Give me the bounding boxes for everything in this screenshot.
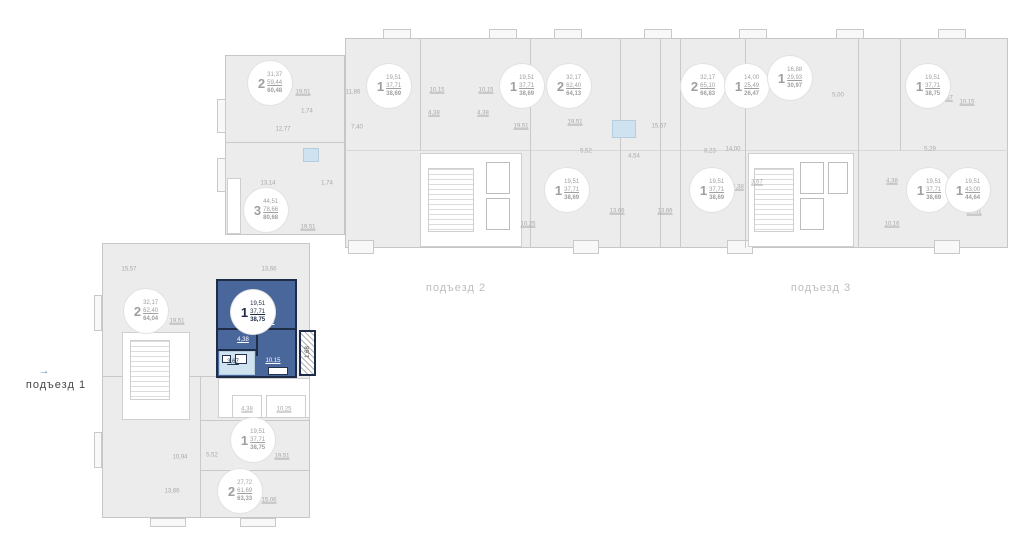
dimension-label: 4,38 [886, 179, 898, 186]
entrance-arrow-icon: → [39, 365, 50, 377]
dimension-label: 7,40 [351, 125, 363, 132]
badge-total-area: 44,64 [965, 194, 980, 202]
balcony-tab [150, 518, 186, 527]
dimension-label: 5,00 [832, 93, 844, 100]
dimension-label: 10,25 [520, 222, 535, 229]
badge-total-area: 38,69 [709, 194, 724, 202]
badge-total-area: 30,97 [787, 82, 802, 90]
wall [345, 150, 1008, 151]
badge-area: 62,40 [143, 307, 158, 315]
badge-total-area: 38,69 [519, 90, 534, 98]
apartment-badge[interactable]: 2 27,7261,6963,33 [218, 469, 262, 513]
badge-total-area: 60,48 [267, 87, 282, 95]
entrance-vestibule [348, 240, 374, 254]
apartment-badge[interactable]: 1 19,5137,7138,69 [500, 64, 544, 108]
apartment-badge[interactable]: 1 19,5137,7138,75 [231, 418, 275, 462]
balcony-tab [217, 99, 226, 133]
badge-total-area: 64,04 [143, 315, 158, 323]
entrance-vestibule [934, 240, 960, 254]
badge-total-area: 63,33 [237, 495, 252, 503]
dimension-label: 15,06 [261, 498, 276, 505]
badge-living-area: 27,72 [237, 479, 252, 487]
badge-area: 37,71 [250, 308, 265, 316]
balcony-tab [383, 29, 411, 39]
dimension-label: 10,94 [172, 455, 187, 462]
badge-living-area: 19,51 [250, 428, 265, 436]
badge-area: 37,71 [709, 186, 724, 194]
dimension-label: 13,66 [164, 489, 179, 496]
badge-rooms: 1 [917, 183, 924, 198]
badge-total-area: 38,69 [564, 194, 579, 202]
badge-area: 43,00 [965, 186, 980, 194]
stairs [754, 168, 794, 232]
elevator [800, 198, 824, 230]
apartment-badge[interactable]: 1 19,5137,7138,69 [367, 64, 411, 108]
elevator [828, 162, 848, 194]
entrance-label-2[interactable]: подъезд 2 [426, 282, 486, 294]
dimension-label: 19,51 [169, 319, 184, 326]
apartment-badge[interactable]: 1 19,5137,7138,69 [907, 168, 951, 212]
dimension-label: 8,23 [704, 149, 716, 156]
badge-total-area: 38,75 [925, 90, 940, 98]
badge-living-area: 32,17 [143, 299, 158, 307]
badge-rooms: 1 [555, 183, 562, 198]
dimension-label: 10,15 [429, 88, 444, 95]
badge-rooms: 3 [254, 203, 261, 218]
room-area-label: 10,15 [265, 358, 280, 364]
bathroom [612, 120, 636, 138]
badge-living-area: 19,51 [519, 74, 534, 82]
dimension-label: 5,52 [206, 453, 218, 460]
badge-living-area: 16,88 [787, 66, 802, 74]
badge-rooms: 1 [700, 183, 707, 198]
badge-living-area: 32,17 [566, 74, 581, 82]
badge-area: 59,44 [267, 79, 282, 87]
apartment-badge[interactable]: 1 19,5137,7138,69 [545, 168, 589, 212]
dimension-label: 13,66 [261, 267, 276, 274]
badge-living-area: 19,51 [926, 178, 941, 186]
elevator [486, 162, 510, 194]
badge-area: 25,49 [744, 82, 759, 90]
wall [680, 38, 681, 248]
balcony-tab [240, 518, 276, 527]
balcony-tab [836, 29, 864, 39]
badge-rooms: 2 [228, 484, 235, 499]
entrance-label-1[interactable]: подъезд 1 [26, 379, 86, 391]
dimension-label: 11,86 [346, 90, 361, 97]
apartment-badge[interactable]: 2 32,1762,4064,13 [547, 64, 591, 108]
wall [256, 330, 258, 356]
wall [620, 38, 621, 248]
wall [225, 142, 345, 143]
dimension-label: 15,67 [651, 124, 666, 131]
shaft [227, 178, 241, 234]
apartment-badge[interactable]: 1 14,0025,4926,47 [725, 64, 769, 108]
badge-living-area: 32,17 [700, 74, 715, 82]
dimension-label: 19,51 [274, 454, 289, 461]
dimension-label: 4,38 [241, 407, 253, 414]
stove-fixture [268, 367, 288, 375]
dimension-label: 10,15 [959, 100, 974, 107]
dimension-label: 1,74 [321, 181, 333, 188]
badge-living-area: 19,51 [250, 300, 265, 308]
apartment-badge[interactable]: 3 44,5178,6680,68 [244, 188, 288, 232]
balcony-tab [94, 432, 102, 468]
dimension-label: 19,51 [295, 90, 310, 97]
badge-total-area: 66,83 [700, 90, 715, 98]
balcony-tab [554, 29, 582, 39]
balcony-tab [644, 29, 672, 39]
badge-rooms: 1 [241, 433, 248, 448]
badge-rooms: 1 [916, 79, 923, 94]
wall [420, 38, 421, 151]
balcony-tab [489, 29, 517, 39]
badge-rooms: 2 [258, 76, 265, 91]
badge-rooms: 1 [510, 79, 517, 94]
badge-rooms: 2 [557, 79, 564, 94]
dimension-label: 14,00 [725, 147, 740, 154]
dimension-label: 1,74 [301, 109, 313, 116]
dimension-label: 19,51 [300, 225, 315, 232]
badge-total-area: 38,75 [250, 316, 265, 324]
dimension-label: 12,77 [275, 127, 290, 134]
badge-area: 78,66 [263, 206, 278, 214]
dimension-label: 4,38 [428, 111, 440, 118]
elevator [800, 162, 824, 194]
badge-area: 37,71 [564, 186, 579, 194]
selected-apartment[interactable]: 19,51 4,38 3,67 10,15 1,68 [216, 279, 318, 379]
badge-rooms: 1 [377, 79, 384, 94]
badge-area: 37,71 [519, 82, 534, 90]
apartment-badge[interactable]: 1 19,5143,0044,64 [946, 168, 990, 212]
apartment-badge[interactable]: 1 19,5137,7138,69 [690, 168, 734, 212]
badge-area: 37,71 [386, 82, 401, 90]
entrance-label-3[interactable]: подъезд 3 [791, 282, 851, 294]
badge-total-area: 64,13 [566, 90, 581, 98]
dimension-label: 10,15 [478, 88, 493, 95]
room-area-label: 4,38 [237, 337, 249, 343]
dimension-label: 5,29 [924, 147, 936, 154]
dimension-label: 10,16 [884, 222, 899, 229]
dimension-label: 15,57 [121, 267, 136, 274]
dimension-label: 4,54 [628, 154, 640, 161]
balcony-tab [739, 29, 767, 39]
apartment-badge[interactable]: 2 31,3759,4460,48 [248, 61, 292, 105]
stairs [130, 340, 170, 400]
badge-rooms: 2 [691, 79, 698, 94]
badge-living-area: 31,37 [267, 71, 282, 79]
badge-area: 37,71 [250, 436, 265, 444]
badge-area: 29,93 [787, 74, 802, 82]
badge-area: 65,10 [700, 82, 715, 90]
badge-living-area: 19,51 [564, 178, 579, 186]
dimension-label: 4,38 [477, 111, 489, 118]
badge-living-area: 19,51 [965, 178, 980, 186]
badge-living-area: 14,00 [744, 74, 759, 82]
badge-living-area: 19,51 [709, 178, 724, 186]
badge-rooms: 1 [241, 305, 248, 320]
apartment-badge[interactable]: 1 19,5137,7138,75 [906, 64, 950, 108]
entrance-vestibule [573, 240, 599, 254]
elevator [486, 198, 510, 230]
badge-living-area: 19,51 [925, 74, 940, 82]
badge-rooms: 1 [735, 79, 742, 94]
wall [200, 377, 201, 518]
badge-rooms: 2 [134, 304, 141, 319]
wall [858, 38, 859, 248]
balcony-tab [938, 29, 966, 39]
apartment-badge[interactable]: 1 16,8829,9330,97 [768, 56, 812, 100]
badge-total-area: 26,47 [744, 90, 759, 98]
bathroom [303, 148, 319, 162]
badge-total-area: 38,69 [386, 90, 401, 98]
badge-area: 62,40 [566, 82, 581, 90]
badge-area: 37,71 [925, 82, 940, 90]
stairs [428, 168, 474, 232]
balcony-tab [94, 295, 102, 331]
dimension-label: 13,66 [609, 209, 624, 216]
wall [200, 470, 310, 471]
badge-total-area: 80,68 [263, 214, 278, 222]
badge-rooms: 1 [956, 183, 963, 198]
badge-living-area: 19,51 [386, 74, 401, 82]
apartment-badge-selected[interactable]: 1 19,51 37,71 38,75 [231, 290, 275, 334]
badge-area: 61,69 [237, 487, 252, 495]
dimension-label: 3,67 [751, 180, 763, 187]
room-area-label: 3,67 [227, 359, 239, 365]
dimension-label: 10,25 [276, 407, 291, 414]
balcony-area-label: 1,68 [305, 346, 311, 358]
apartment-badge[interactable]: 2 32,1765,1066,83 [681, 64, 725, 108]
badge-total-area: 38,69 [926, 194, 941, 202]
apartment-badge[interactable]: 2 32,1762,4064,04 [124, 289, 168, 333]
dimension-label: 19,51 [567, 120, 582, 127]
dimension-label: 19,51 [513, 124, 528, 131]
badge-rooms: 1 [778, 71, 785, 86]
badge-area: 37,71 [926, 186, 941, 194]
badge-total-area: 38,75 [250, 444, 265, 452]
balcony-tab [217, 158, 226, 192]
wall [900, 38, 901, 151]
dimension-label: 13,66 [657, 209, 672, 216]
floor-plan: 19,51 4,38 3,67 10,15 1,68 1 19,51 37,71… [0, 0, 1024, 553]
dimension-label: 13,14 [260, 181, 275, 188]
wall [660, 38, 661, 248]
dimension-label: 5,52 [580, 149, 592, 156]
badge-living-area: 44,51 [263, 198, 278, 206]
